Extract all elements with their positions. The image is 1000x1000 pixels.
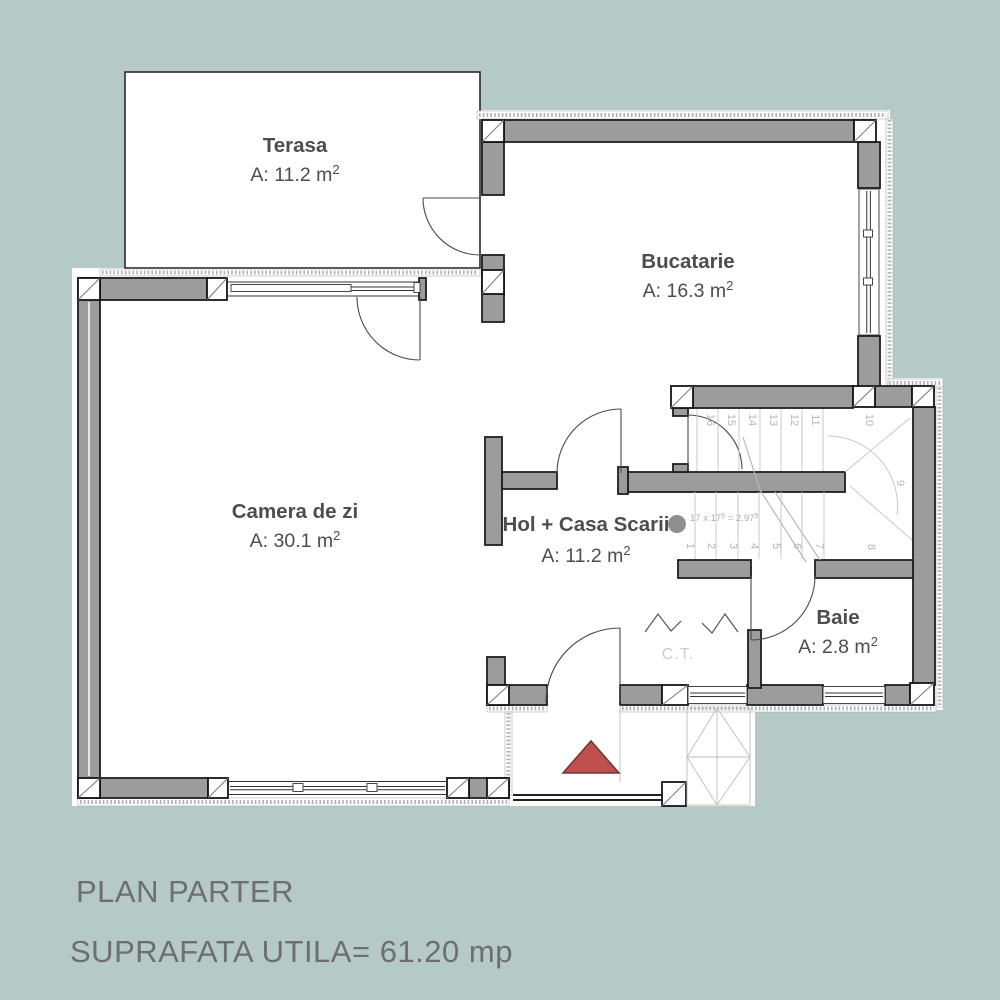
floor-plan-canvas: 1 2 3 4 5 6 7 8 9 10 11 12 13 14 15 16 1… bbox=[0, 0, 1000, 1000]
stair-step-number: 5 bbox=[770, 543, 782, 549]
stair-step-number: 12 bbox=[788, 414, 800, 426]
stair-step-number: 8 bbox=[865, 544, 877, 550]
stair-step-number: 3 bbox=[727, 543, 739, 549]
wall-stair-mid bbox=[628, 472, 845, 492]
wall-stair-north bbox=[693, 386, 853, 408]
wall-baie-west bbox=[748, 630, 761, 688]
label-baie: Baie bbox=[816, 606, 859, 629]
wall-hol-t-vertical bbox=[485, 437, 502, 545]
stair-reference-dot bbox=[668, 515, 686, 533]
stair-step-number: 9 bbox=[894, 480, 906, 486]
stair-step-number: 11 bbox=[809, 414, 821, 425]
plan-surface-total: SUPRAFATA UTILA= 61.20 mp bbox=[70, 934, 513, 969]
label-bucatarie: Bucatarie bbox=[641, 250, 734, 273]
plan-title: PLAN PARTER bbox=[76, 874, 294, 909]
wall-kitchen-east-lower bbox=[858, 336, 880, 388]
stair-step-number: 14 bbox=[746, 414, 758, 426]
wall-hol-t-stub bbox=[502, 472, 557, 489]
stair-step-number: 7 bbox=[813, 543, 825, 549]
label-terasa-area: A: 11.2 m2 bbox=[250, 162, 339, 186]
wall-stair-south-right bbox=[815, 560, 913, 578]
stair-step-number: 2 bbox=[705, 543, 717, 549]
wall-kitchen-east-upper bbox=[858, 142, 880, 188]
wall-east bbox=[913, 407, 935, 685]
room-fill-porch bbox=[505, 700, 755, 806]
wall-camera-north bbox=[100, 278, 207, 300]
wall-kitchen-west-upper bbox=[482, 142, 504, 195]
wall-entry-vertical bbox=[487, 657, 505, 687]
label-camera: Camera de zi bbox=[232, 500, 358, 523]
stair-step-number: 6 bbox=[791, 543, 803, 549]
window-baie-south bbox=[823, 687, 885, 704]
label-ct: C.T. bbox=[662, 646, 694, 663]
stair-step-number: 15 bbox=[725, 414, 737, 426]
wall-step-out bbox=[875, 386, 912, 407]
window-ct-south bbox=[688, 687, 747, 704]
stair-step-number: 16 bbox=[704, 414, 716, 426]
window-kitchen-east bbox=[859, 189, 879, 335]
stair-formula: 17 x 175 = 2.975 bbox=[690, 513, 758, 524]
label-hol-area: A: 11.2 m2 bbox=[541, 543, 630, 567]
wall-stair-mid-bump bbox=[673, 464, 688, 472]
stair-step-number: 1 bbox=[684, 543, 696, 549]
label-baie-area: A: 2.8 m2 bbox=[798, 634, 878, 658]
stair-step-number: 10 bbox=[863, 414, 875, 426]
wall-south-right bbox=[885, 685, 910, 705]
wall-stair-mid-jamb bbox=[618, 467, 628, 494]
wall-south-ct-left bbox=[620, 685, 662, 705]
wall-stair-south-left bbox=[678, 560, 751, 578]
wall-camera-south-left bbox=[100, 778, 208, 798]
label-hol: Hol + Casa Scarii bbox=[503, 513, 670, 536]
label-bucatarie-area: A: 16.3 m2 bbox=[643, 278, 734, 302]
label-camera-area: A: 30.1 m2 bbox=[250, 528, 341, 552]
stair-step-number: 13 bbox=[767, 414, 779, 426]
stair-step-number: 4 bbox=[748, 543, 760, 549]
wall-kitchen-north bbox=[504, 120, 854, 142]
label-terasa: Terasa bbox=[263, 134, 328, 157]
wall-stair-door-jamb bbox=[673, 408, 688, 416]
